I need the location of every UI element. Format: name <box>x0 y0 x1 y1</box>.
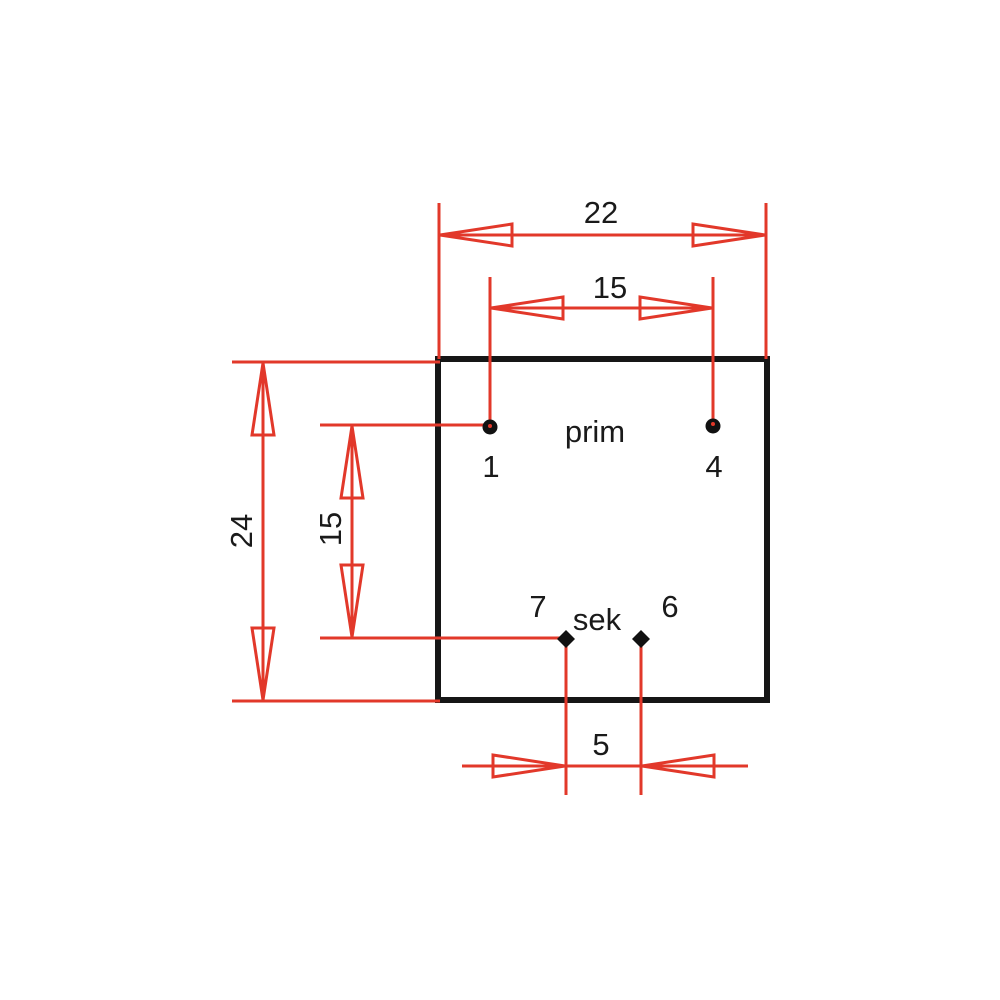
pin-1-label: 1 <box>482 449 499 484</box>
dim-secondary-pin-spacing: 5 <box>462 639 748 795</box>
dim-label-body-width: 22 <box>584 195 618 230</box>
pin-7-label: 7 <box>529 589 546 624</box>
dim-label-secondary-pin-spacing: 5 <box>592 727 609 762</box>
pin-4-label: 4 <box>705 449 722 484</box>
pin-4-pad-center <box>711 422 715 426</box>
pin-6-label: 6 <box>661 589 678 624</box>
dim-label-row-spacing: 15 <box>313 512 348 546</box>
pin-6-pad <box>632 630 650 648</box>
primary-winding-label: prim <box>565 414 625 449</box>
pin-1-pad-center <box>488 424 492 428</box>
dim-label-primary-pin-spacing: 15 <box>593 270 627 305</box>
transformer-body-outline <box>438 359 767 700</box>
dim-primary-pin-spacing: 15 <box>490 270 713 427</box>
secondary-winding-label: sek <box>573 602 622 637</box>
transformer-dimension-drawing: 22 15 24 15 <box>0 0 1000 1000</box>
drawing-canvas: 22 15 24 15 <box>0 0 1000 1000</box>
dim-label-body-height: 24 <box>224 514 259 548</box>
